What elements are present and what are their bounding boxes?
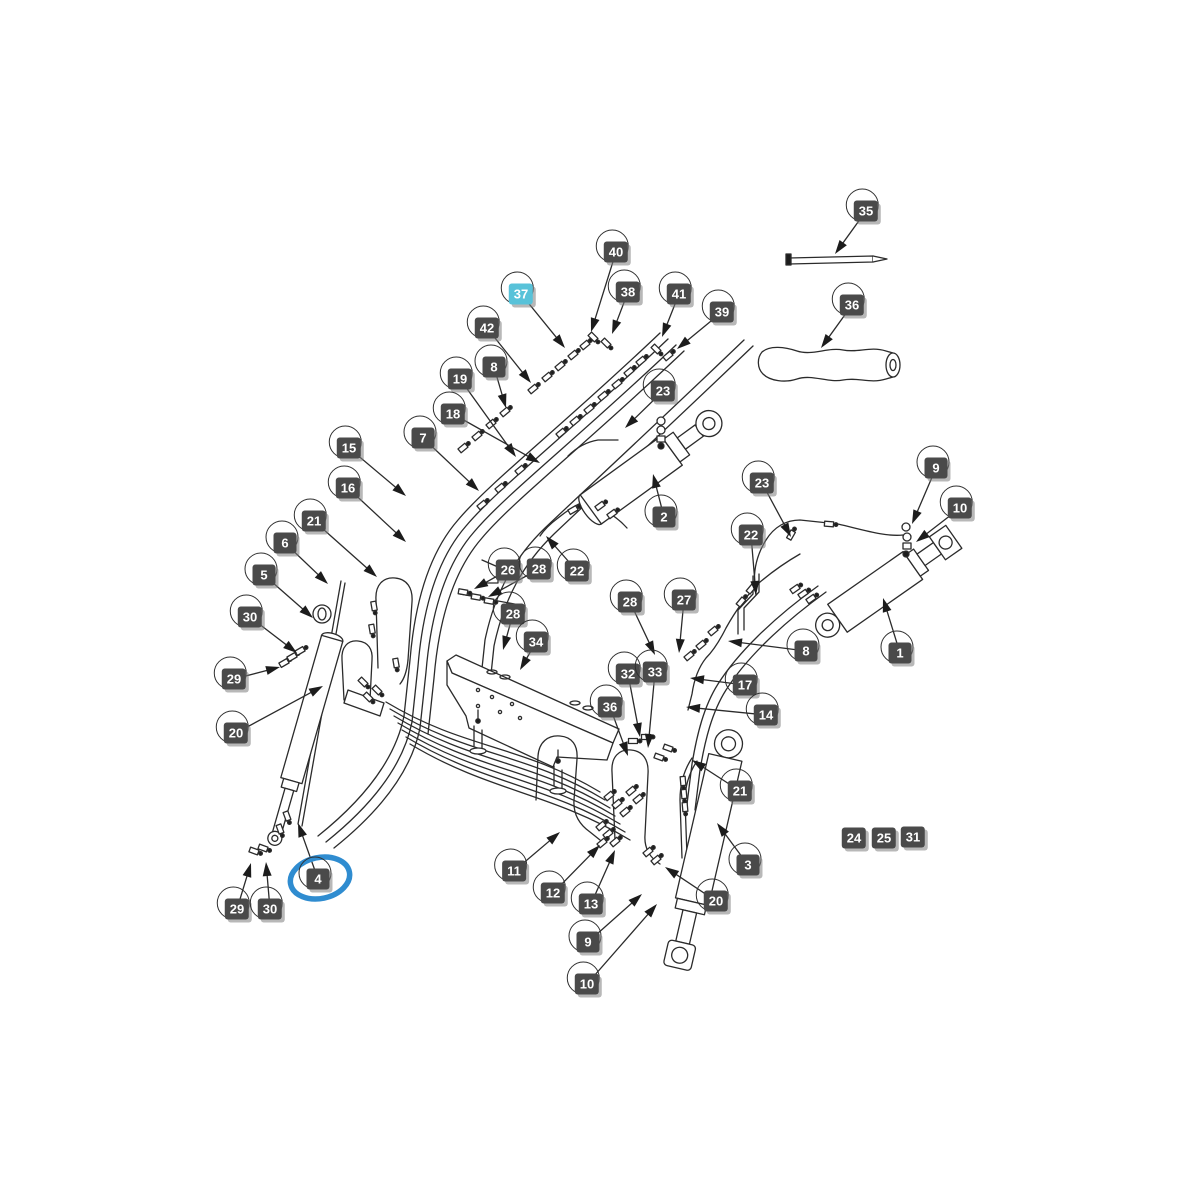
leader-arrowhead (474, 578, 488, 589)
balloon-number: 36 (840, 295, 864, 316)
leader-arrowhead (665, 867, 679, 879)
balloon-number: 10 (575, 974, 599, 995)
balloon-number: 21 (728, 781, 752, 802)
part-balloon-36[interactable]: 36 (598, 697, 622, 718)
leader-arrowhead (263, 862, 272, 876)
balloon-number: 39 (710, 302, 734, 323)
part-balloon-42[interactable]: 42 (475, 318, 499, 339)
part-balloon-39[interactable]: 39 (710, 302, 734, 323)
leader-arrowhead (690, 675, 704, 684)
balloon-number: 28 (618, 592, 642, 613)
balloon-number: 40 (604, 242, 628, 263)
balloon-number: 27 (672, 590, 696, 611)
part-balloon-38[interactable]: 38 (616, 282, 640, 303)
balloon-number: 41 (667, 284, 691, 305)
part-balloon-28[interactable]: 28 (618, 592, 642, 613)
balloon-number: 6 (274, 533, 297, 554)
leader-arrowhead (780, 523, 791, 537)
balloon-number: 34 (524, 632, 548, 653)
part-balloon-9[interactable]: 9 (925, 458, 948, 479)
balloon-number: 5 (253, 565, 276, 586)
leader-arrowhead (619, 741, 628, 756)
balloon-number: 36 (598, 697, 622, 718)
part-balloon-31[interactable]: 31 (901, 827, 925, 848)
balloon-number: 42 (475, 318, 499, 339)
part-balloon-19[interactable]: 19 (448, 369, 472, 390)
balloon-number: 20 (704, 891, 728, 912)
part-balloon-34[interactable]: 34 (524, 632, 548, 653)
leader-arrowhead (283, 641, 297, 653)
part-balloon-35[interactable]: 35 (854, 201, 878, 222)
balloon-number: 8 (795, 641, 818, 662)
balloon-number: 3 (737, 855, 760, 876)
part-balloon-25[interactable]: 25 (872, 828, 896, 849)
parts-diagram-stage: 3536403738413942819187231516216530292026… (0, 0, 1200, 1200)
part-balloon-14[interactable]: 14 (754, 705, 778, 726)
balloon-number: 9 (925, 458, 948, 479)
part-balloon-20[interactable]: 20 (224, 723, 248, 744)
leader-arrowhead (612, 319, 621, 334)
balloon-number: 1 (889, 643, 912, 664)
leader-arrowhead (392, 484, 406, 496)
leader-arrowhead (750, 581, 759, 595)
balloon-number: 13 (579, 894, 603, 915)
balloon-number: 30 (258, 899, 282, 920)
balloon-number: 2 (653, 507, 676, 528)
leader-arrowhead (309, 686, 323, 697)
balloon-number: 12 (541, 883, 565, 904)
leader-arrowhead (835, 240, 847, 254)
part-balloon-21[interactable]: 21 (728, 781, 752, 802)
leader-arrowhead (676, 639, 685, 653)
balloon-number: 22 (565, 561, 589, 582)
leader-arrowhead (662, 322, 671, 337)
leader-arrowhead (821, 334, 833, 348)
part-balloon-30[interactable]: 30 (238, 607, 262, 628)
part-balloon-30[interactable]: 30 (258, 899, 282, 920)
part-balloon-6[interactable]: 6 (274, 533, 297, 554)
balloon-number: 25 (872, 828, 896, 849)
part-balloon-16[interactable]: 16 (336, 478, 360, 499)
balloon-number: 33 (643, 662, 667, 683)
leader-arrowhead (243, 863, 252, 878)
part-balloon-23[interactable]: 23 (651, 381, 675, 402)
part-balloon-5[interactable]: 5 (253, 565, 276, 586)
part-balloon-20[interactable]: 20 (704, 891, 728, 912)
balloon-number: 23 (750, 473, 774, 494)
balloon-number: 23 (651, 381, 675, 402)
part-balloon-41[interactable]: 41 (667, 284, 691, 305)
part-balloon-10[interactable]: 10 (948, 498, 972, 519)
part-balloon-8[interactable]: 8 (483, 357, 506, 378)
part-balloon-17[interactable]: 17 (733, 675, 757, 696)
balloon-number: 29 (222, 669, 246, 690)
balloon-number: 10 (948, 498, 972, 519)
part-balloon-4[interactable]: 4 (307, 869, 330, 890)
balloon-number: 17 (733, 675, 757, 696)
part-balloon-29[interactable]: 29 (225, 899, 249, 920)
part-balloon-26[interactable]: 26 (496, 560, 520, 581)
leader-arrowhead (692, 760, 706, 771)
leader-arrowhead (883, 598, 892, 613)
part-balloon-15[interactable]: 15 (337, 438, 361, 459)
leader-arrowhead (519, 369, 531, 383)
leader-arrowhead (553, 334, 565, 348)
part-balloon-11[interactable]: 11 (502, 861, 526, 882)
leader-arrowhead (645, 734, 654, 748)
leader-arrowhead (591, 317, 600, 332)
balloon-number: 26 (496, 560, 520, 581)
part-balloon-29[interactable]: 29 (222, 669, 246, 690)
leader-arrowhead (916, 530, 930, 542)
part-balloon-13[interactable]: 13 (579, 894, 603, 915)
balloon-number: 20 (224, 723, 248, 744)
leader-arrowhead (498, 393, 507, 408)
balloon-number: 18 (441, 404, 465, 425)
part-balloon-2[interactable]: 2 (653, 507, 676, 528)
balloon-number: 28 (527, 559, 551, 580)
leader-arrowhead (728, 638, 742, 647)
part-balloon-36[interactable]: 36 (840, 295, 864, 316)
leader-arrowhead (677, 337, 691, 349)
part-balloon-22[interactable]: 22 (739, 525, 763, 546)
leader-arrowhead (520, 656, 531, 670)
balloon-number: 16 (336, 478, 360, 499)
part-balloon-3[interactable]: 3 (737, 855, 760, 876)
balloon-number: 21 (302, 511, 326, 532)
balloon-number: 4 (307, 869, 330, 890)
part-balloon-1[interactable]: 1 (889, 643, 912, 664)
part-balloon-8[interactable]: 8 (795, 641, 818, 662)
leader-arrowhead (502, 635, 511, 650)
part-balloon-33[interactable]: 33 (643, 662, 667, 683)
balloon-number: 31 (901, 827, 925, 848)
part-balloon-18[interactable]: 18 (441, 404, 465, 425)
leader-lines-layer (0, 0, 1200, 1200)
leader-arrowhead (504, 443, 516, 457)
leader-arrowhead (652, 474, 661, 489)
balloon-number: 35 (854, 201, 878, 222)
part-balloon-23[interactable]: 23 (750, 473, 774, 494)
part-balloon-28[interactable]: 28 (527, 559, 551, 580)
balloon-number: 11 (502, 861, 526, 882)
balloon-number: 22 (739, 525, 763, 546)
leader-arrowhead (298, 823, 307, 838)
leader-arrowhead (265, 666, 280, 675)
part-balloon-22[interactable]: 22 (565, 561, 589, 582)
part-balloon-24[interactable]: 24 (842, 828, 866, 849)
part-balloon-12[interactable]: 12 (541, 883, 565, 904)
balloon-number: 15 (337, 438, 361, 459)
leader-arrowhead (686, 704, 700, 713)
balloon-number: 19 (448, 369, 472, 390)
balloon-number: 24 (842, 828, 866, 849)
balloon-number: 9 (577, 932, 600, 953)
balloon-number: 30 (238, 607, 262, 628)
balloon-number: 7 (412, 428, 435, 449)
balloon-number: 29 (225, 899, 249, 920)
part-balloon-37[interactable]: 37 (509, 284, 533, 305)
leader-arrowhead (633, 722, 642, 737)
part-balloon-40[interactable]: 40 (604, 242, 628, 263)
leader-arrowhead (605, 850, 615, 865)
part-balloon-10[interactable]: 10 (575, 974, 599, 995)
part-balloon-9[interactable]: 9 (577, 932, 600, 953)
part-balloon-27[interactable]: 27 (672, 590, 696, 611)
leader-line (453, 414, 537, 462)
leader-arrowhead (526, 452, 540, 463)
part-balloon-7[interactable]: 7 (412, 428, 435, 449)
leader-arrowhead (912, 509, 922, 524)
balloon-number: 37 (509, 284, 533, 305)
balloon-number: 38 (616, 282, 640, 303)
balloon-number: 14 (754, 705, 778, 726)
part-balloon-21[interactable]: 21 (302, 511, 326, 532)
balloon-number: 8 (483, 357, 506, 378)
leader-arrowhead (717, 823, 729, 837)
